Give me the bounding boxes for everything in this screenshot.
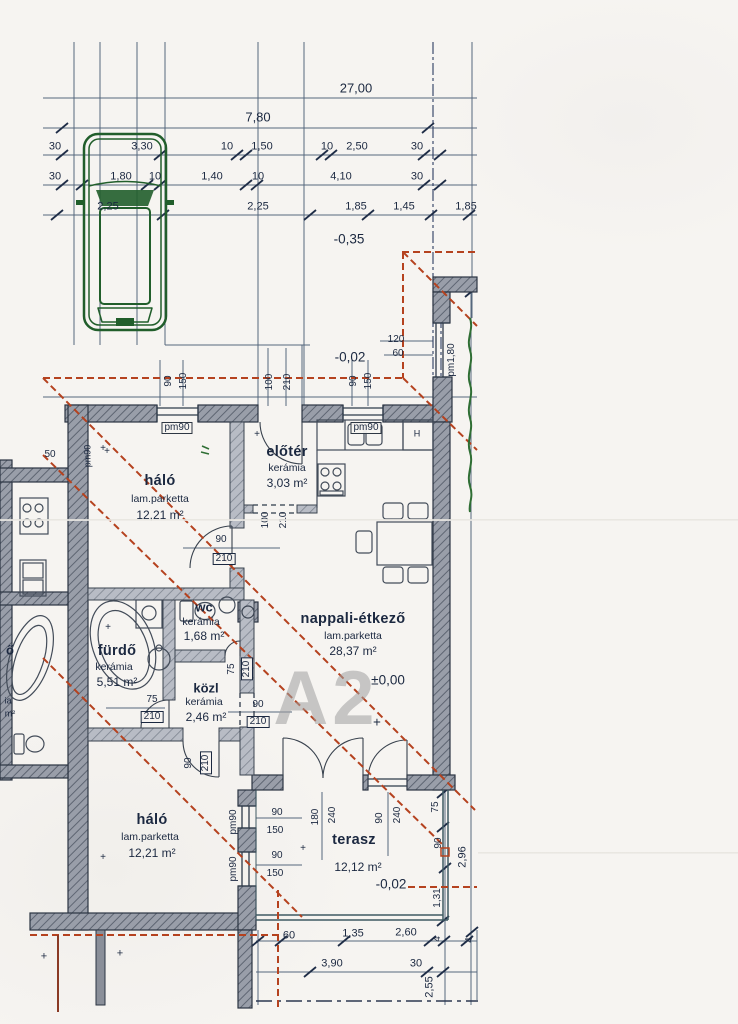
sill-label: pm90 <box>161 422 192 434</box>
dim: 30 <box>411 142 423 153</box>
neighbor-room-label: ő <box>6 644 14 657</box>
plus-mark: + <box>373 715 381 729</box>
dim: 3,30 <box>131 142 152 153</box>
dim: 2,25 <box>247 202 268 213</box>
dim: 1,85 <box>455 202 476 213</box>
plus-mark: + <box>300 844 306 854</box>
neighbor-finish-label: ia <box>4 697 11 706</box>
room-name-wc: wc <box>195 601 212 614</box>
plus-mark: + <box>117 949 123 960</box>
dim: 1,40 <box>201 172 222 183</box>
level-parking: -0,35 <box>334 232 365 246</box>
dim: 2,25 <box>97 202 118 213</box>
plus-mark: + <box>105 623 111 633</box>
halo2-win1-h: 150 <box>267 826 284 836</box>
door-wc-h: 210 <box>241 658 253 681</box>
halo2-win2-w: 90 <box>271 851 282 861</box>
room-finish-halo2: lam.parketta <box>121 832 179 843</box>
dim: 10 <box>321 142 333 153</box>
level-walkway: -0,02 <box>335 350 366 364</box>
dim-bottom-b: 1,35 <box>342 929 363 940</box>
room-area-terasz: 12,12 m² <box>334 861 381 873</box>
dim-bottom-c: 2,60 <box>395 928 416 939</box>
room-name-terasz: terasz <box>332 833 376 848</box>
room-area-eloter: 3,03 m² <box>267 477 308 489</box>
halo2-win2-h: 150 <box>267 869 284 879</box>
scanned-floor-plan-page: A2 27,00 7,80 30 3,30 10 1,50 10 2,50 30… <box>0 0 738 1024</box>
dim: 10 <box>149 172 161 183</box>
win2-h: 150 <box>364 373 374 390</box>
dim-pillar-w: 120 <box>388 335 405 345</box>
room-name-eloter: előtér <box>266 445 307 460</box>
door-halo1-h: 210 <box>213 553 236 565</box>
dim-neighbor-50: 50 <box>44 450 55 460</box>
room-name-halo1: háló <box>144 474 175 489</box>
unit-code-watermark: A2 <box>273 661 378 737</box>
dim-pillar-h: 60 <box>392 349 403 359</box>
win2-w: 90 <box>349 375 359 386</box>
room-name-furdo: fürdő <box>98 644 137 659</box>
room-area-halo2: 12,21 m² <box>128 847 175 859</box>
neighbor-area-label: m² <box>5 710 16 719</box>
room-finish-eloter: kerámia <box>268 463 305 474</box>
dim-subtotal: 7,80 <box>245 111 270 124</box>
paper-crease <box>478 852 738 854</box>
room-area-wc: 1,68 m² <box>184 630 225 642</box>
win1-w: 90 <box>164 375 174 386</box>
sill-label-180: pm1,80 <box>447 343 457 376</box>
entry-w: 100 <box>265 374 275 391</box>
dim: 10 <box>252 172 264 183</box>
dim-tick4: 4 <box>433 936 443 942</box>
text-overlay: A2 27,00 7,80 30 3,30 10 1,50 10 2,50 30… <box>0 0 738 1024</box>
dim: 30 <box>49 142 61 153</box>
plus-mark: + <box>254 430 260 440</box>
dim: 30 <box>49 172 61 183</box>
plus-mark: + <box>104 447 110 457</box>
paper-crease <box>0 519 738 521</box>
room-name-nappali: nappali-étkező <box>301 612 406 627</box>
dim-tick4: 4 <box>465 937 475 943</box>
neighbor-sill-label: pm90 <box>84 445 93 468</box>
room-area-kozl: 2,46 m² <box>186 711 227 723</box>
dim: 1,80 <box>110 172 131 183</box>
dim-right-depth: 2,55 <box>425 976 436 997</box>
terrace-door-h: 240 <box>328 807 338 824</box>
door-furdo-h: 210 <box>141 711 164 723</box>
dim: 1,50 <box>251 142 272 153</box>
room-finish-nappali: lam.parketta <box>324 631 382 642</box>
dim-right-a: 75 <box>431 801 441 812</box>
dim-right-b: 90 <box>434 837 444 848</box>
plus-mark: + <box>100 853 106 863</box>
dim: 1,45 <box>393 202 414 213</box>
level-main: ±0,00 <box>371 673 405 687</box>
dim: 2,50 <box>346 142 367 153</box>
dim-bottom-total: 3,90 <box>321 959 342 970</box>
terrace-win-h: 240 <box>393 807 403 824</box>
room-finish-wc: kerámia <box>182 617 219 628</box>
sill-label: pm90 <box>229 856 239 881</box>
halo2-win1-w: 90 <box>271 808 282 818</box>
sill-label: pm90 <box>229 809 239 834</box>
dim: 30 <box>411 172 423 183</box>
door-nappali-h: 210 <box>247 716 270 728</box>
dim-bottom-a: 60 <box>283 931 295 942</box>
terrace-win-w: 90 <box>375 812 385 823</box>
door-halo1-w: 90 <box>215 535 226 545</box>
dim-bottom-edge: 30 <box>410 959 422 970</box>
terrace-door-w: 180 <box>311 809 321 826</box>
dim-right-c: 1,31 <box>433 888 443 907</box>
plus-mark: + <box>41 952 47 963</box>
room-area-nappali: 28,37 m² <box>329 645 376 657</box>
room-area-furdo: 5,51 m² <box>97 676 138 688</box>
dim: 1,85 <box>345 202 366 213</box>
sill-label: pm90 <box>350 422 381 434</box>
dim-total: 27,00 <box>340 82 373 95</box>
win1-h: 150 <box>179 373 189 390</box>
door-wc-w: 75 <box>227 663 237 674</box>
level-terrace: -0,02 <box>376 877 407 891</box>
room-finish-kozl: kerámia <box>185 697 222 708</box>
dim: 10 <box>221 142 233 153</box>
door-nappali-w: 90 <box>252 700 263 710</box>
room-name-kozl: közl <box>193 682 218 695</box>
door-furdo-w: 75 <box>146 695 157 705</box>
dim: 4,10 <box>330 172 351 183</box>
entry-h: 210 <box>283 374 293 391</box>
room-name-halo2: háló <box>136 813 167 828</box>
dim-right-total: 2,96 <box>458 846 469 867</box>
fridge-label: H <box>414 430 421 439</box>
door-halo2-h: 210 <box>200 752 212 775</box>
door-halo2-w: 90 <box>184 757 194 768</box>
room-finish-furdo: kerámia <box>95 662 132 673</box>
room-finish-halo1: lam.parketta <box>131 494 189 505</box>
